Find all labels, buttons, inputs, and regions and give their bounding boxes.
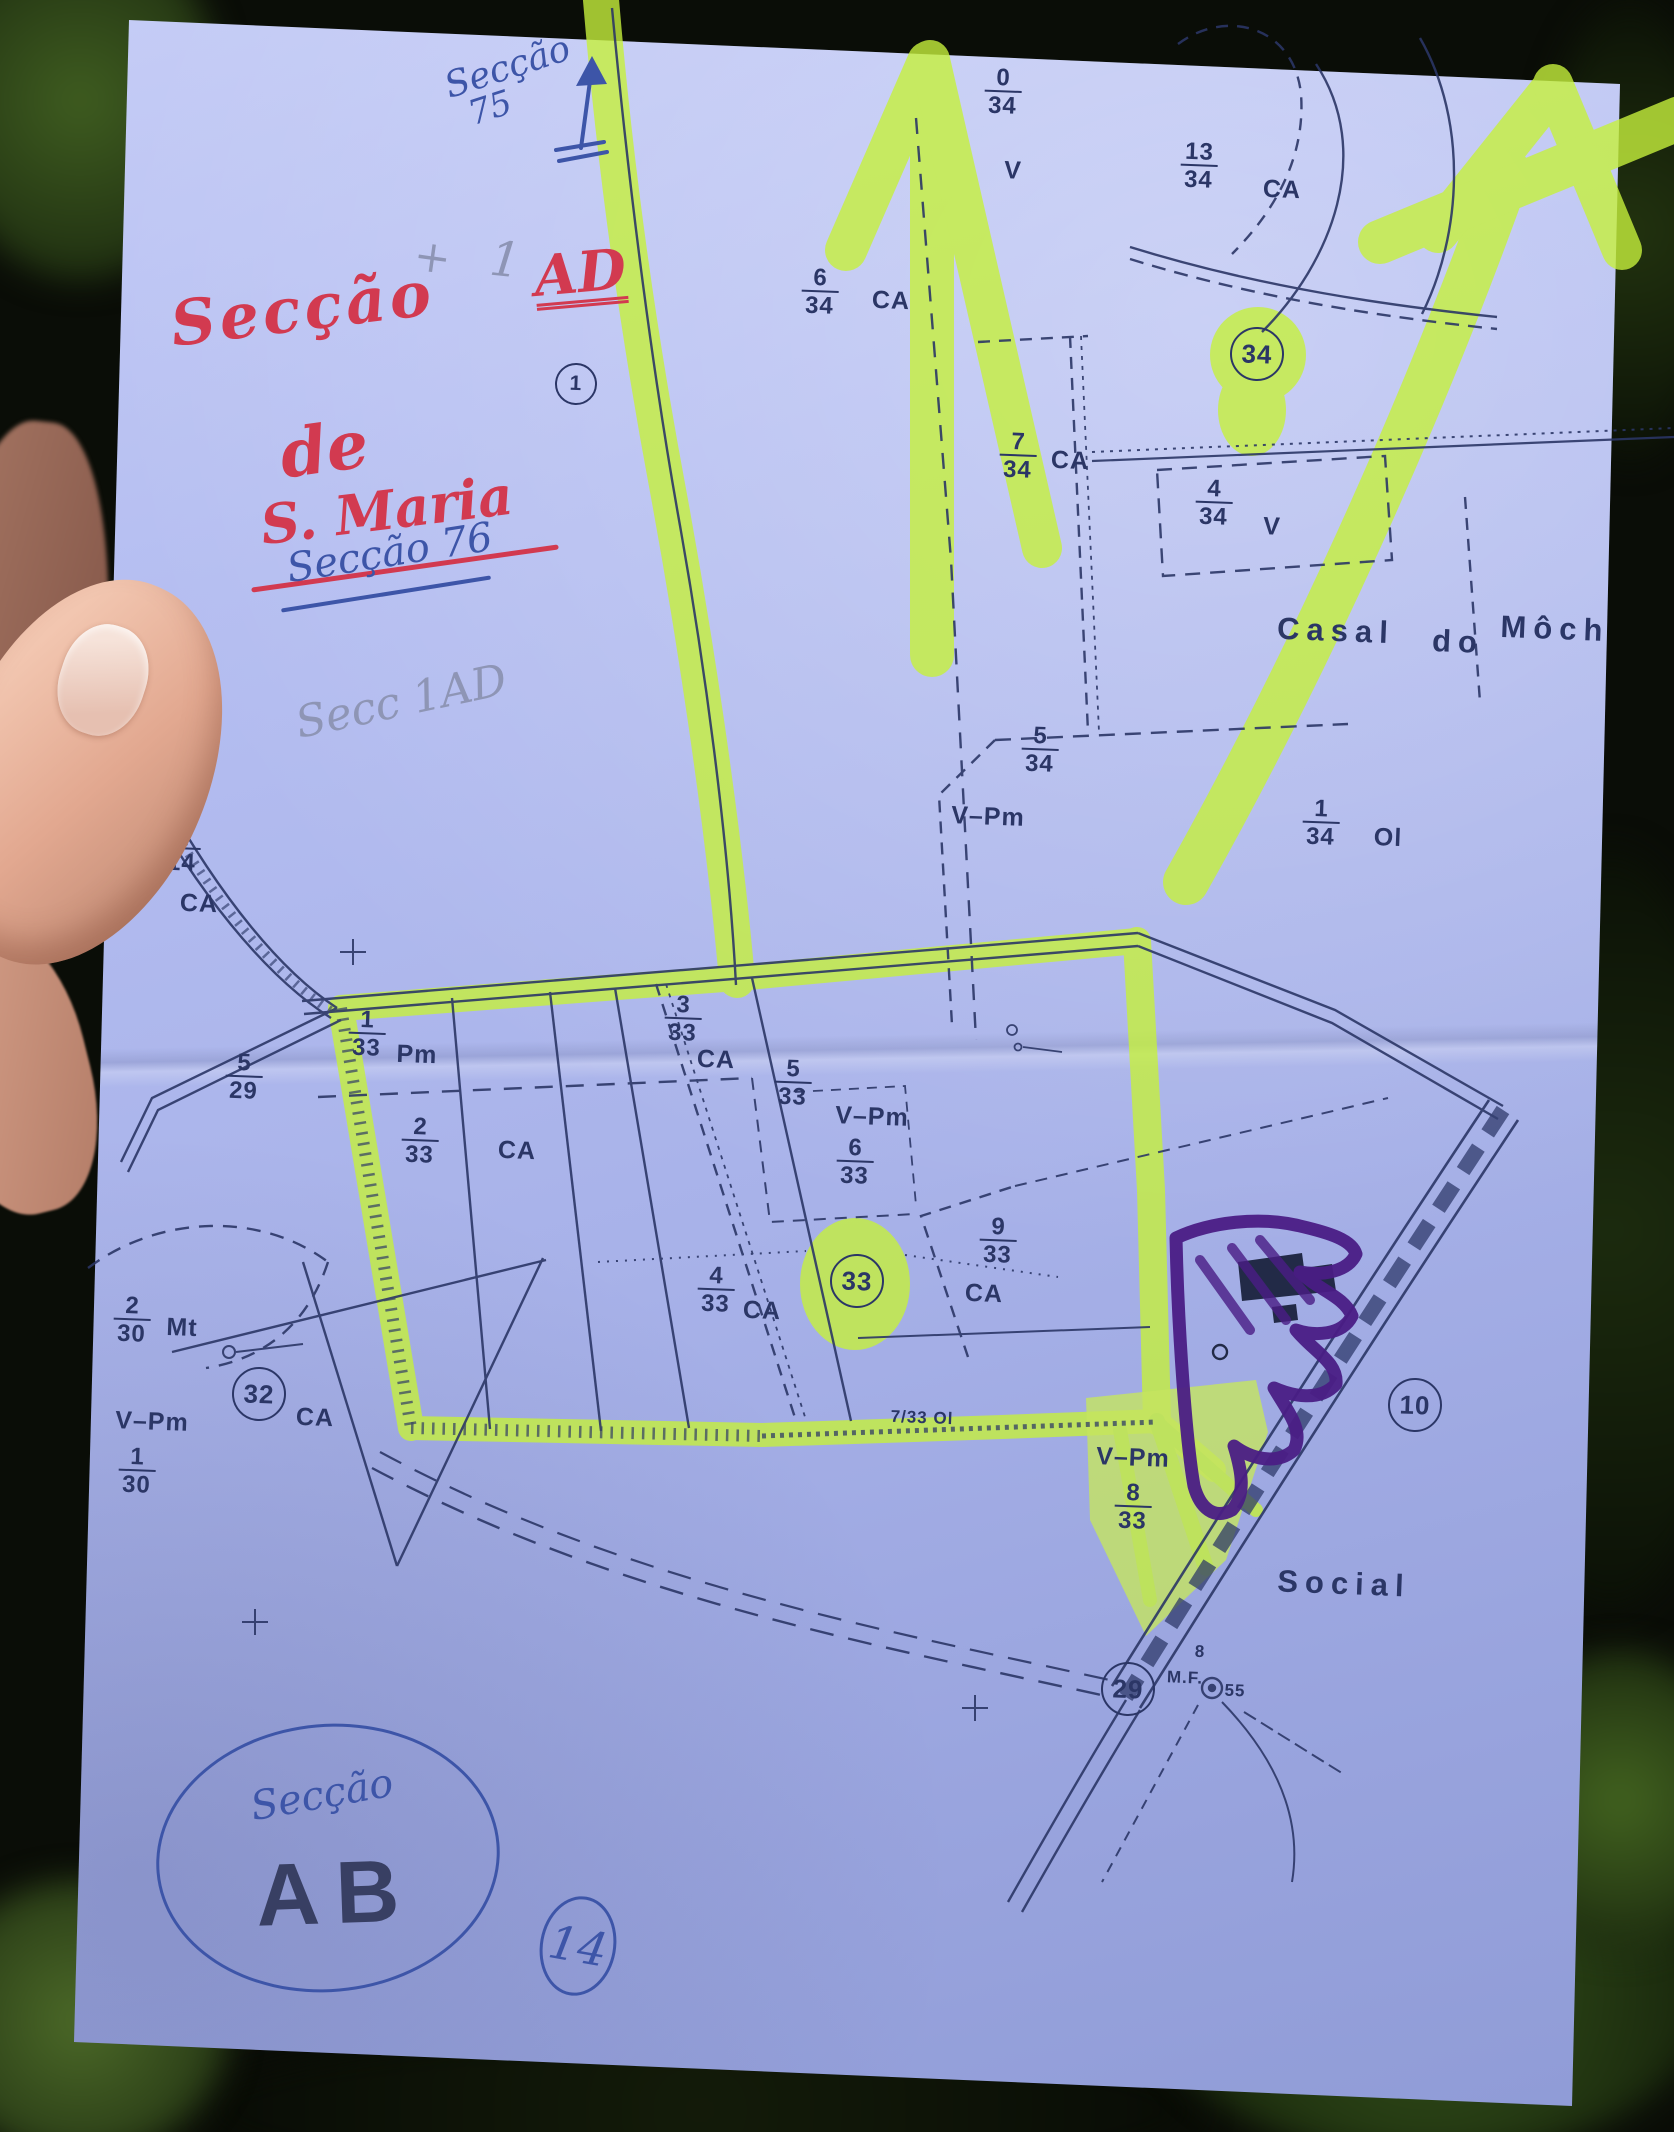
- map-label: CA: [498, 1136, 537, 1166]
- map-label: V: [1263, 512, 1282, 542]
- map-label: Pm: [396, 1040, 438, 1071]
- map-label: 633: [836, 1135, 875, 1190]
- map-label: 434: [1194, 476, 1233, 531]
- handwritten-section-ab: AB: [254, 1839, 417, 1946]
- pencil-one: 1: [487, 231, 523, 290]
- map-label: Mt: [166, 1313, 198, 1343]
- map-label: Social: [1277, 1564, 1412, 1605]
- map-label: CA: [697, 1044, 736, 1074]
- map-label: do: [1431, 623, 1484, 661]
- parcel-circled-number: 10: [1386, 1377, 1442, 1433]
- map-label: 034: [983, 64, 1022, 119]
- map-label: V–Pm: [115, 1406, 190, 1438]
- map-label: 634: [801, 265, 840, 320]
- map-label: 514: [163, 821, 202, 876]
- map-label: 433: [697, 1262, 736, 1317]
- map-label: M.F.: [1167, 1667, 1204, 1688]
- map-label: 933: [978, 1213, 1017, 1268]
- map-label: 55: [1225, 1680, 1247, 1701]
- handwritten-title-code-ad: AD: [531, 236, 628, 310]
- map-label: 133: [347, 1007, 386, 1062]
- parcel-circled-number: 32: [231, 1366, 287, 1422]
- map-label: 529: [225, 1049, 264, 1104]
- map-label: CA: [1263, 175, 1302, 205]
- map-label: CA: [1050, 445, 1089, 475]
- map-label: CA: [965, 1279, 1004, 1309]
- map-label: 534: [1020, 723, 1059, 778]
- map-label: 833: [1114, 1480, 1153, 1535]
- map-label: V–Pm: [1096, 1442, 1171, 1474]
- map-label: 233: [401, 1113, 440, 1168]
- parcel-circled-number: 1: [554, 362, 598, 406]
- map-label: CA: [180, 889, 219, 919]
- map-label: 1334: [1179, 139, 1218, 194]
- map-label: 333: [664, 992, 703, 1047]
- parcel-circled-number: 33: [829, 1253, 885, 1309]
- map-label: 533: [774, 1056, 813, 1111]
- map-label: 7/33 Ol: [891, 1407, 954, 1429]
- photo-scene: 034V1334CA634CA34734CA434VCasaldoMôch534…: [0, 0, 1674, 2132]
- parcel-circled-number: 29: [1100, 1661, 1156, 1717]
- map-label: V: [1003, 156, 1022, 186]
- parcel-circled-number: 34: [1229, 326, 1285, 382]
- map-label: 130: [118, 1444, 157, 1499]
- map-label: Casal: [1276, 611, 1395, 651]
- map-label: Ol: [1373, 823, 1402, 853]
- map-label: 734: [998, 429, 1037, 484]
- blue-circled-number-value: 14: [544, 1914, 611, 1977]
- map-label: CA: [742, 1296, 781, 1326]
- map-label: 8: [1195, 1642, 1206, 1662]
- map-label: V–Pm: [835, 1101, 910, 1133]
- map-label: V–Pm: [950, 801, 1025, 833]
- map-label: CA: [295, 1403, 334, 1433]
- map-label: 230: [113, 1292, 152, 1347]
- map-label: Môch: [1500, 609, 1610, 649]
- map-label: CA: [871, 285, 910, 315]
- map-label: 134: [1301, 796, 1340, 851]
